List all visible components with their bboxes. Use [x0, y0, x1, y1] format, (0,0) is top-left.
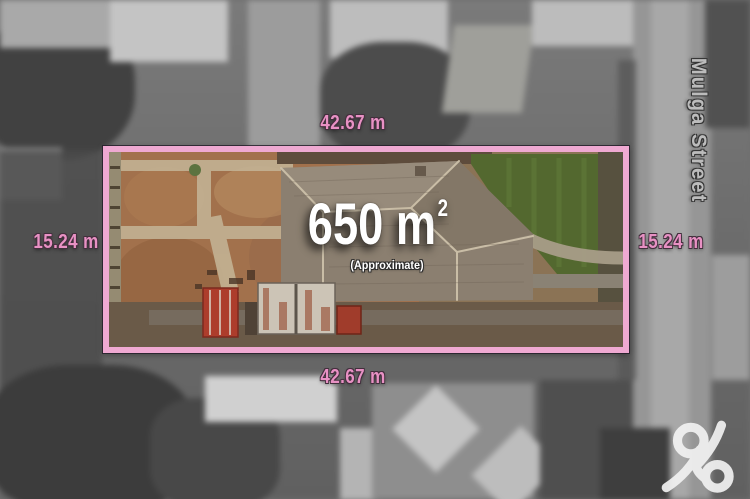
area-value: 650 m2	[308, 196, 448, 254]
background-tree	[0, 150, 102, 395]
dimension-label-left: 15.24 m	[19, 231, 113, 254]
background-tree	[705, 0, 750, 128]
ampersand-logo-icon	[654, 420, 748, 498]
area-qualifier: (Approximate)	[323, 258, 451, 272]
background-roof	[442, 25, 534, 113]
dimension-label-top: 42.67 m	[306, 112, 400, 135]
background-roof	[0, 0, 125, 48]
background-roof	[110, 0, 228, 62]
area-annotation: 650 m2 (Approximate)	[288, 196, 458, 272]
area-superscript: 2	[438, 195, 448, 222]
background-shed	[340, 428, 376, 499]
aerial-property-photo: 42.67 m 42.67 m 15.24 m 15.24 m 650 m2 (…	[0, 0, 750, 499]
street-name-label: Mulga Street	[686, 58, 710, 237]
dimension-label-bottom: 42.67 m	[306, 366, 400, 389]
background-driveway	[712, 255, 750, 380]
